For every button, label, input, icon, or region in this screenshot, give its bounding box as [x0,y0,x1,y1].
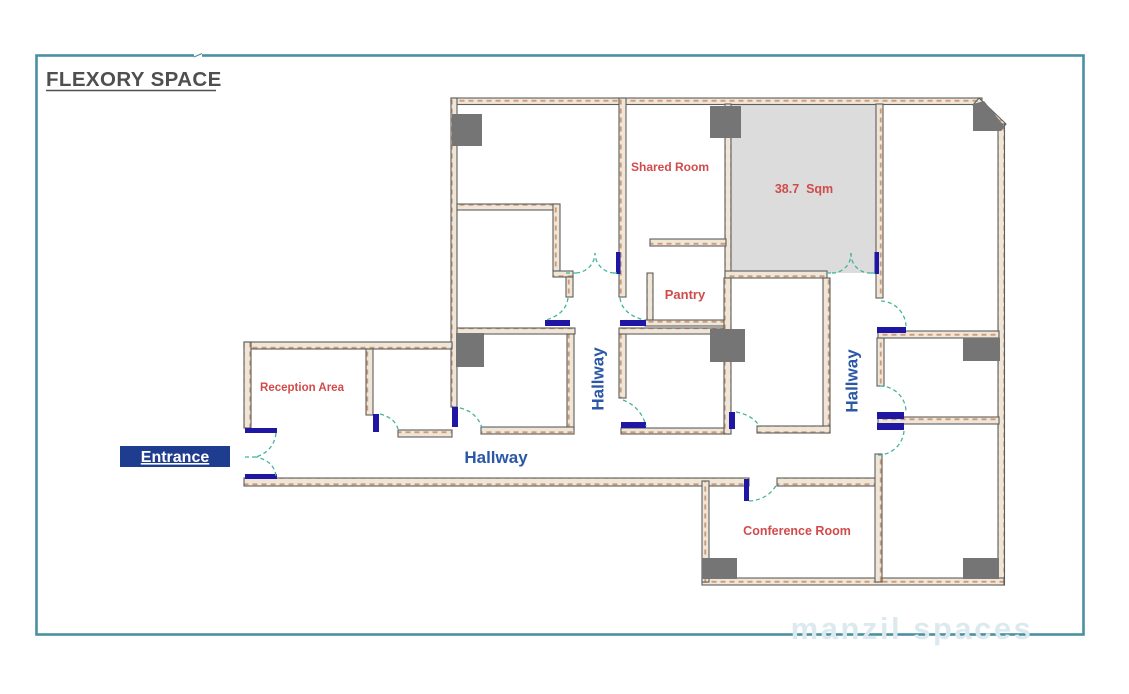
svg-text:Pantry: Pantry [665,287,706,302]
svg-text:manzil spaces: manzil spaces [791,611,1034,646]
svg-text:Shared Room: Shared Room [631,160,709,174]
svg-text:FLEXORY SPACE: FLEXORY SPACE [46,68,222,91]
svg-text:Entrance: Entrance [141,449,210,466]
svg-text:Hallway: Hallway [464,448,528,467]
svg-text:Reception Area: Reception Area [260,382,345,394]
svg-text:38.7 Sqm: 38.7 Sqm [775,182,833,196]
svg-text:Hallway: Hallway [842,349,861,413]
svg-text:Hallway: Hallway [588,347,607,411]
svg-text:Conference Room: Conference Room [743,524,851,538]
